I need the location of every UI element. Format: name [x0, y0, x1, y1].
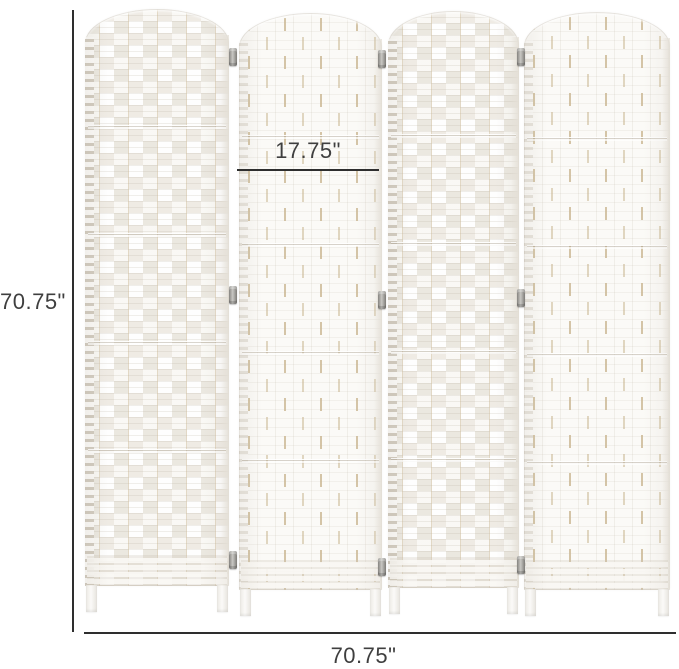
hinge-icon: [517, 289, 525, 307]
panel-woven-edge: [524, 40, 533, 590]
panel-leg: [658, 589, 669, 616]
panel-section-divider: [88, 125, 226, 129]
panel-leg: [525, 589, 536, 616]
panel-leg: [217, 585, 228, 612]
panel-section-divider: [242, 243, 379, 247]
panel-woven-edge: [239, 41, 248, 590]
hinge-icon: [378, 291, 386, 309]
panel-leg: [370, 589, 381, 616]
panel-section-divider: [88, 341, 226, 345]
height-dimension-line: [72, 10, 74, 632]
hinge-icon: [517, 48, 525, 66]
panel-leg: [389, 587, 400, 614]
panel-section-divider: [391, 134, 516, 138]
hinge-icon: [517, 556, 525, 574]
hinge-icon: [378, 558, 386, 576]
panel-bottom-rail: [87, 556, 227, 586]
panel-leg: [240, 589, 251, 616]
width-dimension-line: [84, 632, 676, 634]
hinge-icon: [229, 551, 237, 569]
height-dimension-label: 70.75": [0, 291, 64, 313]
panel-bottom-rail: [241, 560, 380, 590]
panel-section-divider: [527, 461, 667, 465]
product-dimension-image: 70.75" 70.75" 17.75": [0, 0, 679, 669]
hinge-icon: [378, 50, 386, 68]
panel-frame-stile: [221, 35, 229, 586]
panel-section-divider: [391, 458, 516, 462]
panel-section-divider: [242, 351, 379, 355]
panel-frame-stile: [511, 37, 519, 588]
panel-width-dimension-line: [237, 169, 379, 171]
panel-woven-edge: [388, 39, 397, 588]
panel-leg: [507, 587, 518, 614]
panel-woven-edge: [85, 37, 94, 586]
divider-panel-1: [85, 9, 229, 586]
panel-frame-stile: [374, 39, 382, 590]
panel-frame-stile: [662, 38, 670, 590]
panel-section-divider: [527, 245, 667, 249]
width-dimension-label: 70.75": [300, 645, 427, 667]
panel-section-divider: [527, 137, 667, 141]
panel-section-divider: [88, 449, 226, 453]
panel-width-dimension-label: 17.75": [247, 140, 369, 162]
divider-panel-3: [388, 11, 519, 588]
panel-section-divider: [391, 350, 516, 354]
panel-leg: [86, 585, 97, 612]
hinge-icon: [229, 48, 237, 66]
divider-panel-2: [239, 13, 382, 590]
panel-bottom-rail: [390, 558, 517, 588]
panel-bottom-rail: [526, 560, 668, 590]
panel-section-divider: [88, 233, 226, 237]
panel-section-divider: [242, 459, 379, 463]
hinge-icon: [229, 286, 237, 304]
panel-section-divider: [391, 242, 516, 246]
panel-section-divider: [527, 353, 667, 357]
divider-panel-4: [524, 12, 670, 590]
